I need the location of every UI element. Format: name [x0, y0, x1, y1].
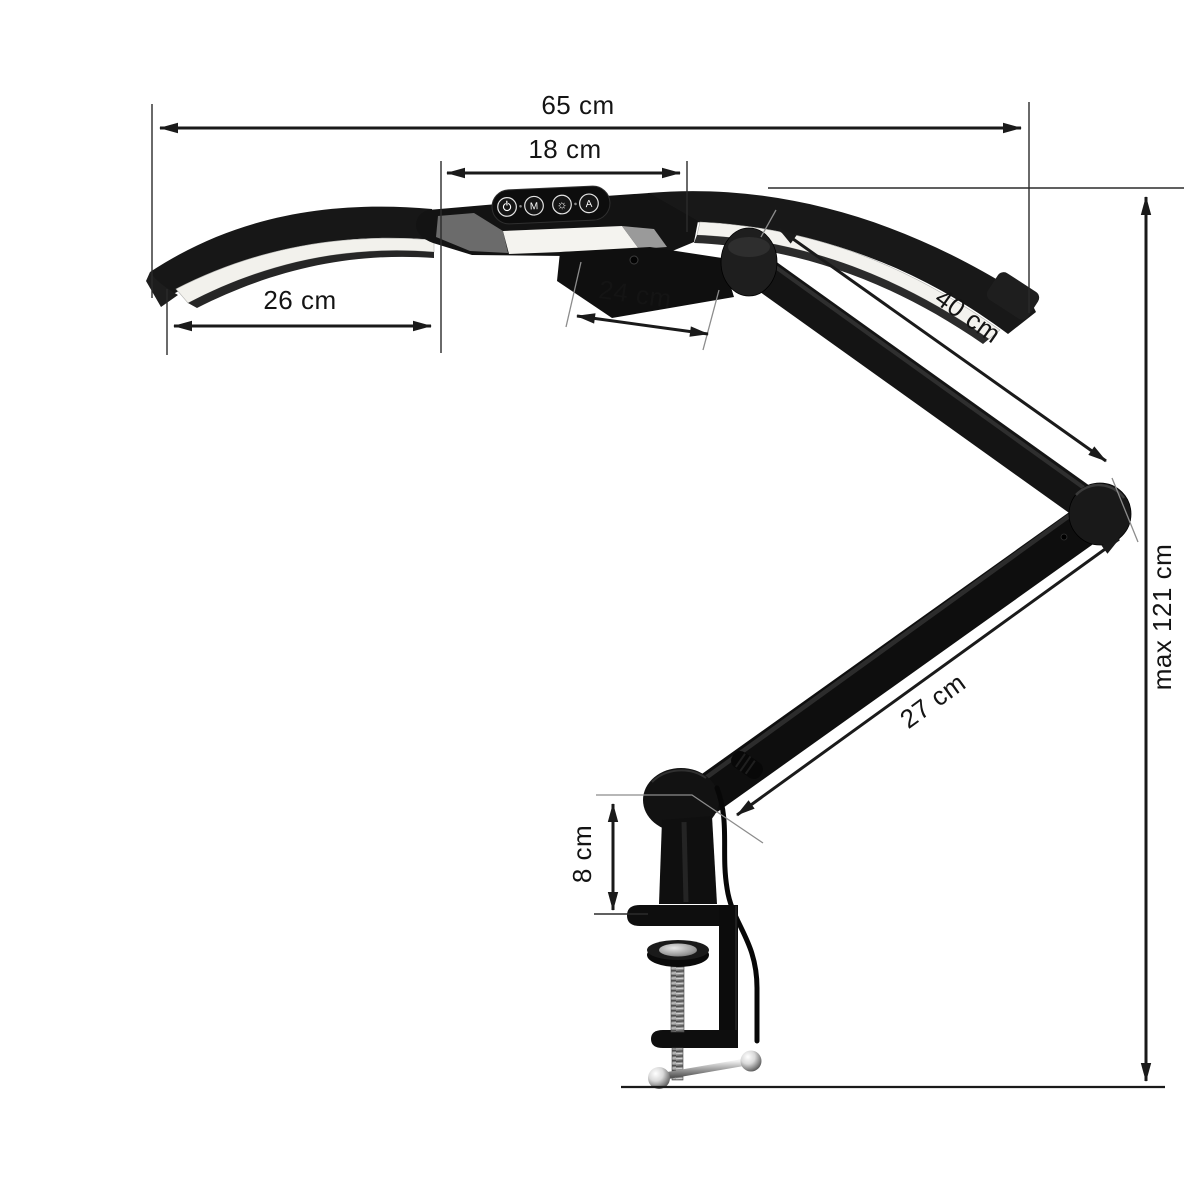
bracket-screw [630, 256, 638, 264]
clamp-t-handle[interactable] [648, 1051, 762, 1090]
dim-clamp-height-label: 8 cm [567, 825, 597, 883]
clamp-back-plate [719, 905, 738, 1048]
lower-arm-highlight [700, 506, 1083, 782]
power-button[interactable] [497, 197, 516, 216]
mode-button[interactable]: M [524, 196, 543, 215]
pivot-top-face [728, 237, 770, 257]
dim-max-height-label: max 121 cm [1147, 544, 1177, 691]
head-pivot-joint [721, 228, 777, 296]
handle-ball-left [648, 1067, 670, 1089]
dim-clamp-height: 8 cm [567, 804, 648, 914]
lamp-dimension-diagram: M ☼ A [0, 0, 1200, 1200]
mode-icon: M [530, 201, 539, 212]
dim-wing-length-label: 26 cm [263, 285, 336, 315]
control-panel: M ☼ A [491, 185, 610, 224]
auto-button[interactable]: A [579, 194, 598, 213]
elbow-screw [1061, 534, 1067, 540]
brightness-button[interactable]: ☼ [552, 195, 571, 214]
auto-icon: A [585, 199, 592, 210]
handle-ball-right [741, 1051, 762, 1072]
lower-arm [700, 506, 1094, 797]
brightness-icon: ☼ [556, 197, 568, 211]
post-highlight [684, 822, 686, 902]
dim-head-width-label: 18 cm [528, 134, 601, 164]
clamp-bottom-arm [651, 1030, 738, 1048]
diagram-svg: M ☼ A [0, 0, 1200, 1200]
clamp-pressure-pad [647, 940, 709, 967]
dim-total-width-label: 65 cm [541, 90, 614, 120]
base-joint [643, 768, 719, 904]
